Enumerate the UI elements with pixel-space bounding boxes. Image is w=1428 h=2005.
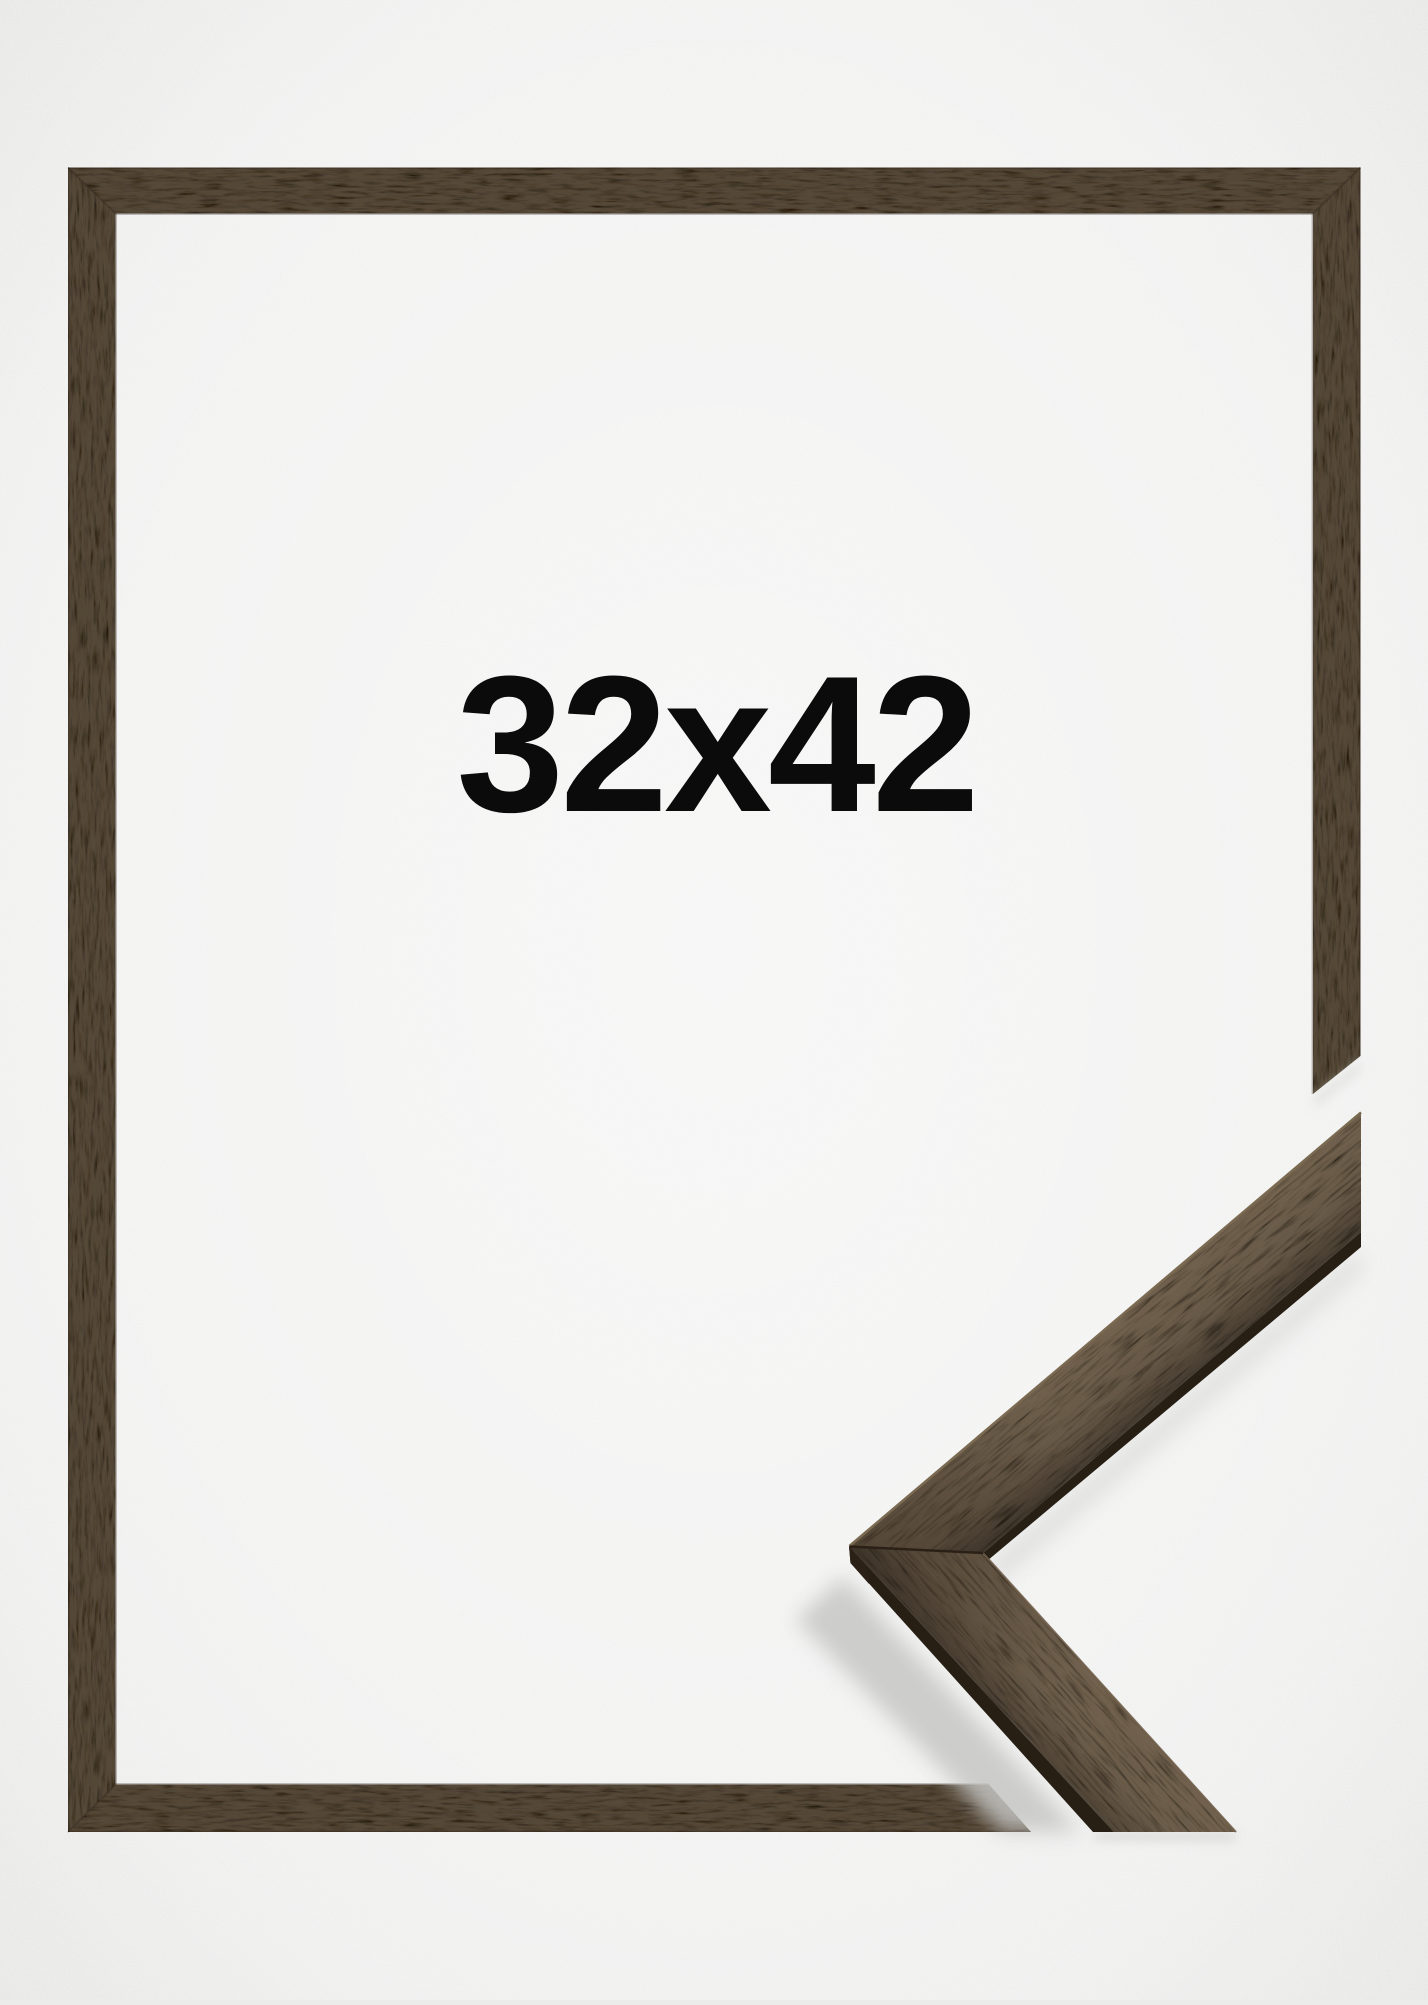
svg-text:32x42: 32x42 [456, 636, 975, 853]
